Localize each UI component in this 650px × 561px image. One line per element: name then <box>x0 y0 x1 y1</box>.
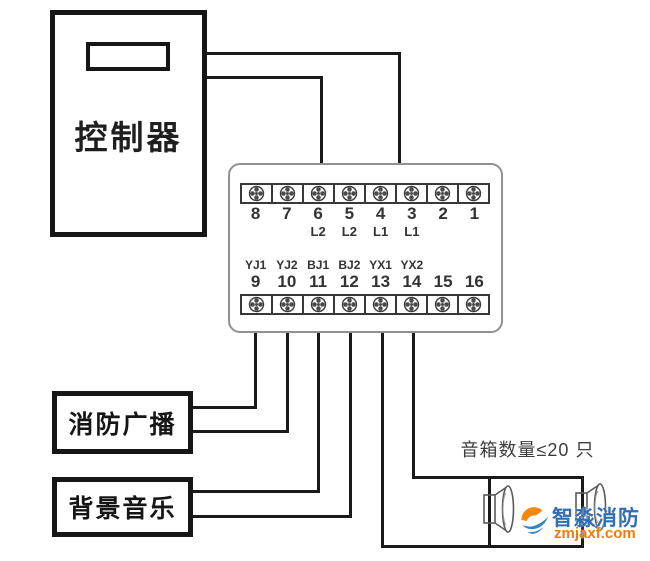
wire-terminal12-to-background-music <box>190 515 352 518</box>
wire-controller-line1-horizontal <box>205 52 401 55</box>
wire-terminal10-to-fire-broadcast <box>190 430 289 433</box>
screw-icon <box>403 296 420 313</box>
screw-terminal-5 <box>333 183 366 204</box>
wire-terminal9-vertical <box>254 331 257 409</box>
terminal-strip-bottom <box>240 294 490 315</box>
controller-display <box>86 42 170 71</box>
signal-label: L1 <box>365 224 396 239</box>
screw-terminal-9 <box>240 294 273 315</box>
screw-icon <box>310 185 327 202</box>
screw-icon <box>434 296 451 313</box>
terminal-number: 6 <box>303 204 334 224</box>
screw-terminal-4 <box>364 183 397 204</box>
terminal-numbers-top: 8 7 6 5 4 3 2 1 <box>240 204 490 224</box>
screw-terminal-7 <box>271 183 304 204</box>
controller-box: 控制器 <box>50 10 207 237</box>
screw-icon <box>341 296 358 313</box>
signal-label: L2 <box>334 224 365 239</box>
signal-label <box>240 224 271 239</box>
screw-icon <box>372 296 389 313</box>
wire-terminal12-vertical <box>349 331 352 518</box>
terminal-number: 15 <box>428 272 459 292</box>
signal-label: BJ2 <box>334 258 365 272</box>
signal-label: YX1 <box>365 258 396 272</box>
terminal-number: 13 <box>365 272 396 292</box>
terminal-number: 10 <box>271 272 302 292</box>
screw-terminal-11 <box>302 294 335 315</box>
controller-label: 控制器 <box>55 111 202 159</box>
fire-broadcast-label: 消防广播 <box>57 396 188 449</box>
speaker-count-note: 音箱数量≤20 只 <box>440 436 615 462</box>
terminal-number: 14 <box>396 272 427 292</box>
screw-icon <box>403 185 420 202</box>
signal-label <box>459 224 490 239</box>
screw-terminal-8 <box>240 183 273 204</box>
terminal-strip-top <box>240 183 490 204</box>
screw-terminal-10 <box>271 294 304 315</box>
screw-terminal-13 <box>364 294 397 315</box>
terminal-number: 8 <box>240 204 271 224</box>
screw-icon <box>279 185 296 202</box>
terminal-number: 9 <box>240 272 271 292</box>
screw-icon <box>372 185 389 202</box>
signal-label: YX2 <box>396 258 427 272</box>
watermark-logo-icon <box>519 505 551 535</box>
wire-terminal13-vertical <box>381 331 384 548</box>
watermark-site: zmjaxf.com <box>554 525 636 542</box>
screw-terminal-6 <box>302 183 335 204</box>
terminal-number: 16 <box>459 272 490 292</box>
screw-icon <box>248 185 265 202</box>
screw-icon <box>341 185 358 202</box>
background-music-box: 背景音乐 <box>52 477 193 537</box>
screw-icon <box>465 296 482 313</box>
wire-controller-line1-vertical <box>398 52 401 164</box>
signal-label: YJ2 <box>271 258 302 272</box>
screw-icon <box>248 296 265 313</box>
wire-controller-line2-horizontal <box>205 76 323 79</box>
signal-label: BJ1 <box>303 258 334 272</box>
screw-terminal-3 <box>395 183 428 204</box>
signal-label: L1 <box>396 224 427 239</box>
signal-label: L2 <box>303 224 334 239</box>
screw-terminal-12 <box>333 294 366 315</box>
screw-terminal-16 <box>457 294 490 315</box>
wiring-diagram: 控制器 8 7 6 5 4 3 2 1 L2 L2 L1 L1 YJ1 YJ2 … <box>0 0 650 561</box>
terminal-number: 3 <box>396 204 427 224</box>
signal-label <box>459 258 490 272</box>
wire-terminal11-vertical <box>317 331 320 493</box>
screw-icon <box>465 185 482 202</box>
screw-icon <box>310 296 327 313</box>
speaker-icon <box>480 483 520 535</box>
signal-label: YJ1 <box>240 258 271 272</box>
terminal-signal-labels-top: L2 L2 L1 L1 <box>240 224 490 239</box>
screw-terminal-15 <box>426 294 459 315</box>
terminal-number: 11 <box>303 272 334 292</box>
screw-icon <box>279 296 296 313</box>
wire-terminal10-vertical <box>286 331 289 433</box>
terminal-numbers-bottom: 9 10 11 12 13 14 15 16 <box>240 272 490 292</box>
wire-terminal9-to-fire-broadcast <box>190 406 257 409</box>
screw-terminal-1 <box>457 183 490 204</box>
terminal-number: 12 <box>334 272 365 292</box>
fire-broadcast-box: 消防广播 <box>52 391 193 454</box>
wire-terminal11-to-background-music <box>190 490 320 493</box>
screw-terminal-14 <box>395 294 428 315</box>
signal-label <box>428 224 459 239</box>
terminal-number: 2 <box>428 204 459 224</box>
background-music-label: 背景音乐 <box>57 482 188 532</box>
watermark: 智淼消防 zmjaxf.com <box>518 501 648 549</box>
terminal-number: 4 <box>365 204 396 224</box>
terminal-signal-labels-bottom: YJ1 YJ2 BJ1 BJ2 YX1 YX2 <box>240 258 490 272</box>
wire-speaker-bus-top <box>412 476 584 479</box>
wire-terminal14-vertical <box>412 331 415 479</box>
signal-label <box>428 258 459 272</box>
terminal-number: 1 <box>459 204 490 224</box>
terminal-number: 7 <box>271 204 302 224</box>
screw-icon <box>434 185 451 202</box>
terminal-number: 5 <box>334 204 365 224</box>
signal-label <box>271 224 302 239</box>
wire-controller-line2-vertical <box>320 76 323 164</box>
screw-terminal-2 <box>426 183 459 204</box>
